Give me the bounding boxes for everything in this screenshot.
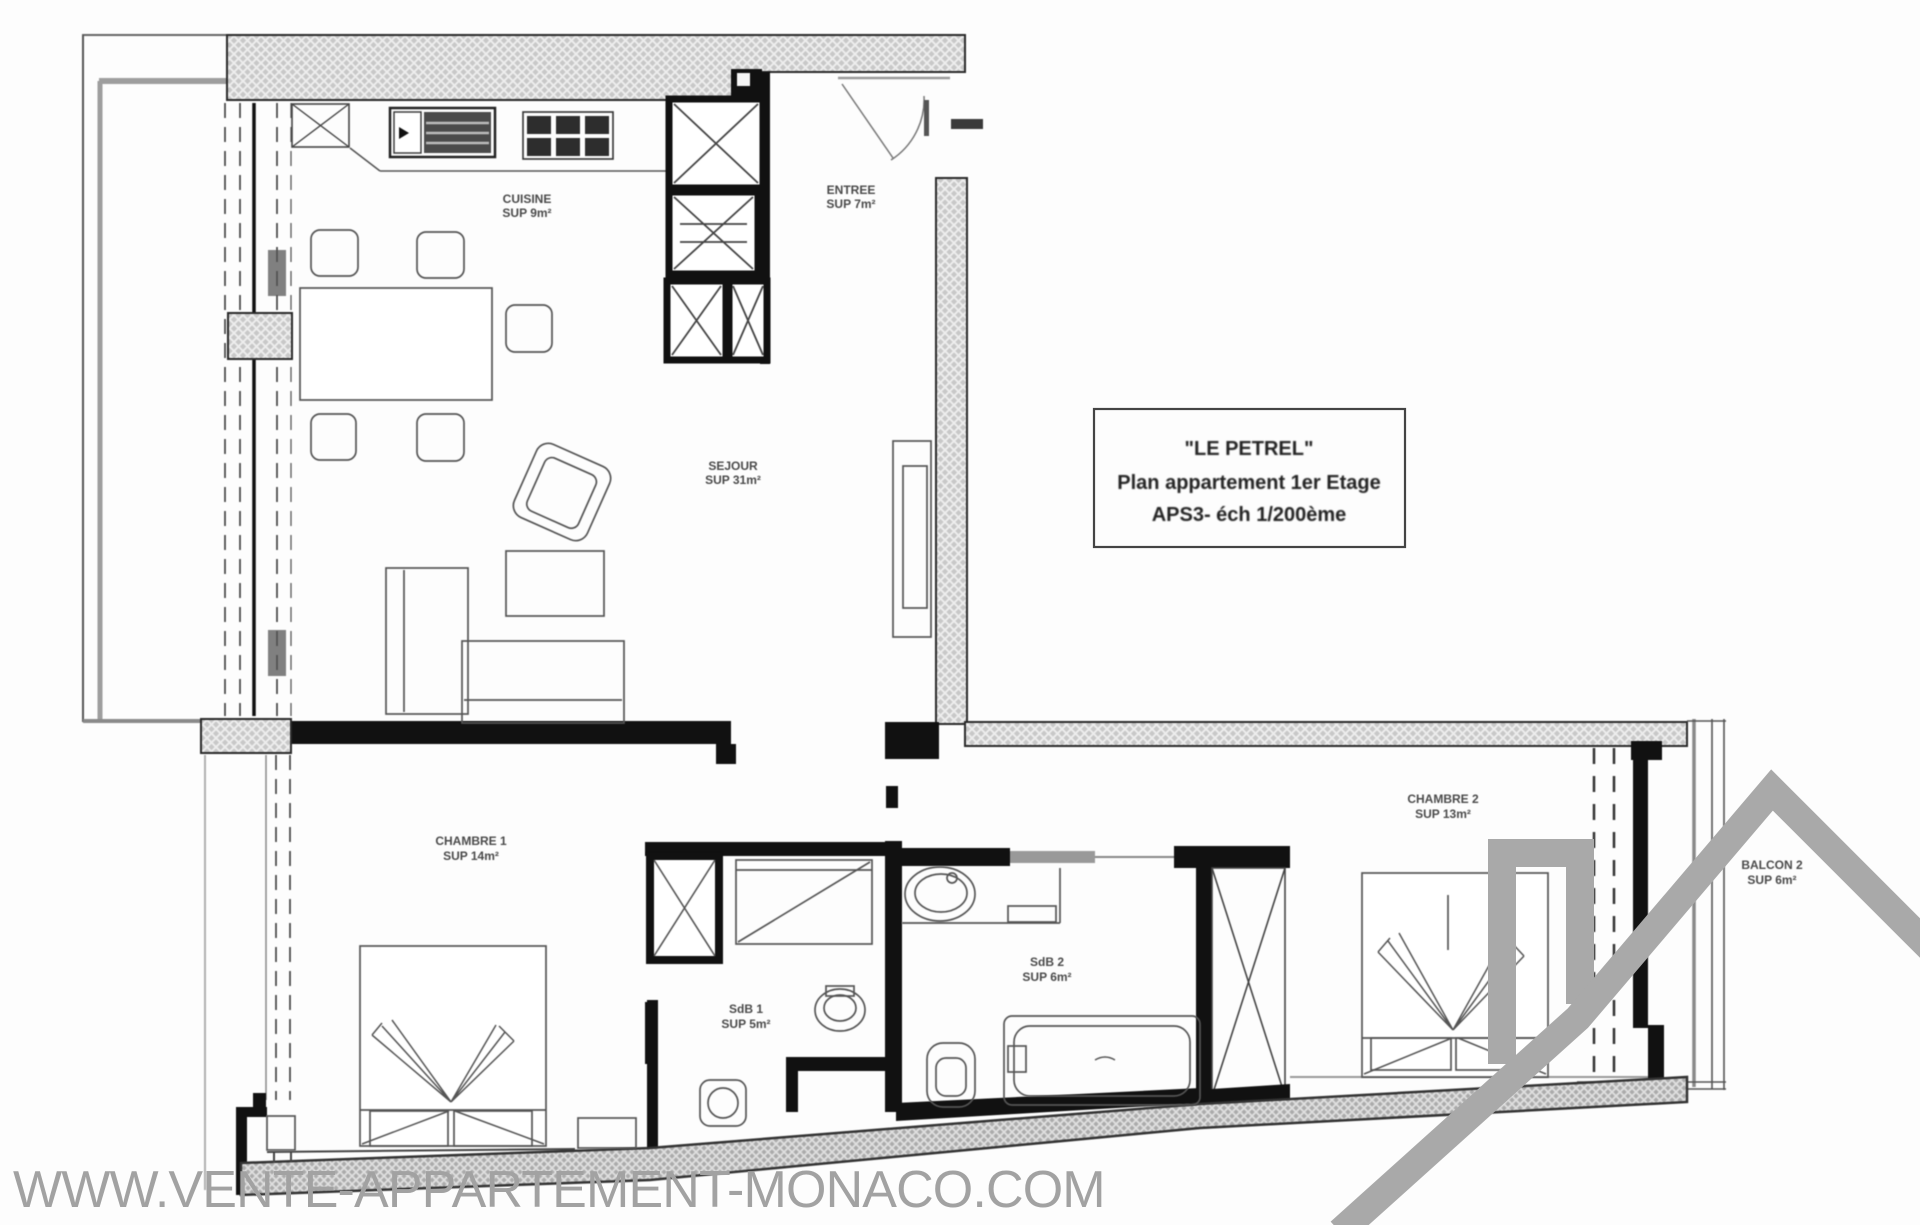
svg-text:ENTREE: ENTREE — [827, 183, 876, 197]
svg-text:Plan appartement 1er Etage: Plan appartement 1er Etage — [1117, 472, 1380, 494]
svg-text:"LE PETREL": "LE PETREL" — [1185, 438, 1314, 460]
svg-text:SUP 31m²: SUP 31m² — [705, 473, 761, 487]
svg-text:CHAMBRE 2: CHAMBRE 2 — [1407, 792, 1479, 806]
svg-text:SUP 7m²: SUP 7m² — [826, 197, 875, 211]
svg-text:SUP 6m²: SUP 6m² — [1747, 873, 1796, 887]
svg-text:APS3- éch 1/200ème: APS3- éch 1/200ème — [1152, 504, 1347, 526]
svg-text:SUP 6m²: SUP 6m² — [1022, 970, 1071, 984]
svg-text:SdB 2: SdB 2 — [1030, 955, 1064, 969]
svg-text:CUISINE: CUISINE — [503, 192, 552, 206]
svg-text:SUP 9m²: SUP 9m² — [502, 206, 551, 220]
svg-text:SUP 13m²: SUP 13m² — [1415, 807, 1471, 821]
svg-text:SEJOUR: SEJOUR — [708, 459, 758, 473]
svg-text:WWW.VENTE-APPARTEMENT-MONACO.C: WWW.VENTE-APPARTEMENT-MONACO.COM — [13, 1161, 1105, 1219]
svg-text:SdB 1: SdB 1 — [729, 1002, 763, 1016]
svg-text:SUP 14m²: SUP 14m² — [443, 849, 499, 863]
svg-text:CHAMBRE 1: CHAMBRE 1 — [435, 834, 507, 848]
svg-text:SUP 5m²: SUP 5m² — [721, 1017, 770, 1031]
svg-text:BALCON 2: BALCON 2 — [1741, 858, 1803, 872]
